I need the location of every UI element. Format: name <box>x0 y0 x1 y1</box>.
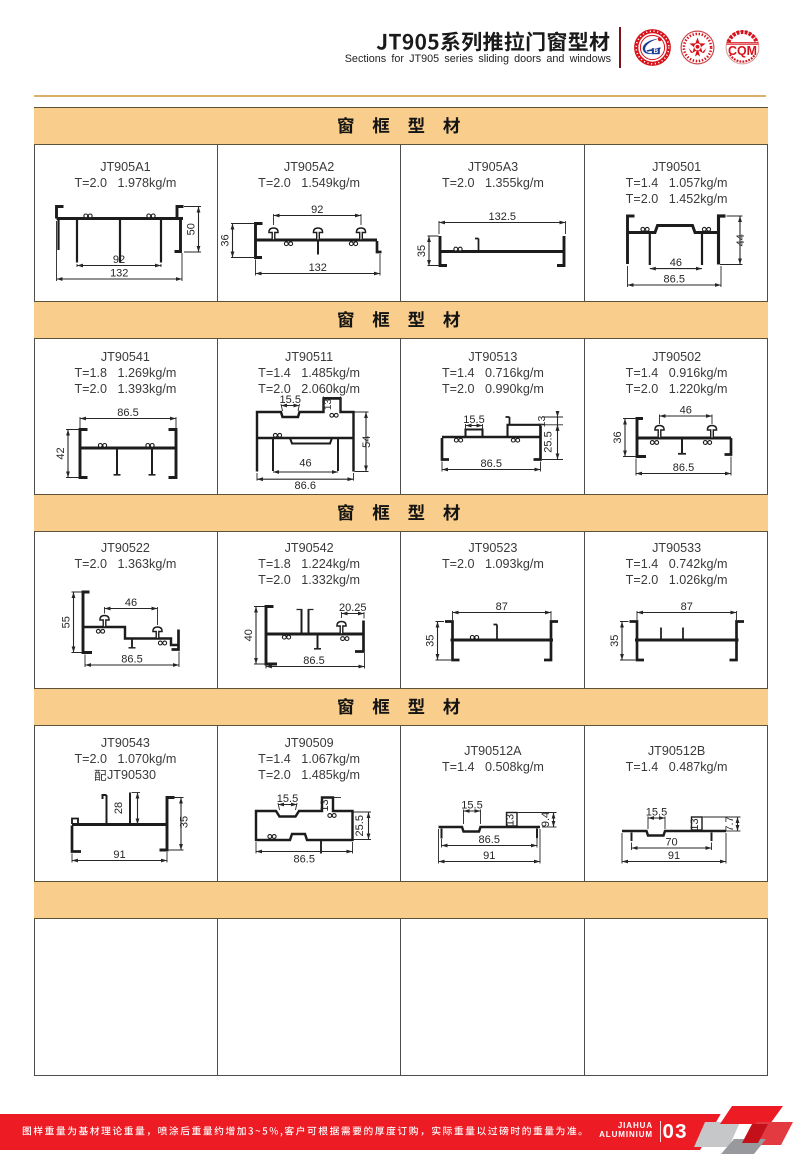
svg-text:15.5: 15.5 <box>280 394 301 406</box>
svg-text:86.5: 86.5 <box>121 653 142 665</box>
svg-text:15.5: 15.5 <box>277 793 298 805</box>
svg-text:13: 13 <box>505 814 517 826</box>
svg-text:70: 70 <box>665 836 677 848</box>
svg-text:35: 35 <box>179 816 191 828</box>
svg-text:36: 36 <box>612 431 624 443</box>
svg-text:86.5: 86.5 <box>303 655 324 667</box>
svg-text:91: 91 <box>113 849 125 861</box>
svg-text:15.5: 15.5 <box>463 414 484 426</box>
svg-text:35: 35 <box>416 245 428 257</box>
svg-text:86.5: 86.5 <box>479 834 500 846</box>
svg-text:132: 132 <box>110 267 128 279</box>
svg-text:9.4: 9.4 <box>540 812 552 827</box>
svg-text:15.5: 15.5 <box>461 799 482 811</box>
svg-text:86.5: 86.5 <box>117 407 138 419</box>
svg-text:35: 35 <box>609 635 621 647</box>
svg-text:42: 42 <box>55 447 67 459</box>
svg-text:13: 13 <box>323 399 334 411</box>
svg-text:46: 46 <box>670 257 682 269</box>
svg-text:86.6: 86.6 <box>295 480 316 492</box>
svg-text:13: 13 <box>319 799 331 811</box>
svg-text:44: 44 <box>735 234 747 246</box>
svg-text:92: 92 <box>113 254 125 266</box>
svg-text:132: 132 <box>309 262 327 274</box>
svg-text:28: 28 <box>113 802 125 814</box>
svg-text:86.5: 86.5 <box>294 854 315 866</box>
svg-text:46: 46 <box>299 458 311 470</box>
svg-text:86.5: 86.5 <box>481 458 502 470</box>
svg-text:15.5: 15.5 <box>646 806 667 818</box>
svg-text:55: 55 <box>60 616 72 628</box>
svg-text:13: 13 <box>536 416 548 428</box>
svg-text:87: 87 <box>681 601 693 613</box>
svg-text:87: 87 <box>496 601 508 613</box>
svg-text:35: 35 <box>424 635 436 647</box>
svg-text:36: 36 <box>219 234 231 246</box>
svg-text:86.5: 86.5 <box>664 273 685 285</box>
svg-text:92: 92 <box>311 204 323 216</box>
svg-text:132.5: 132.5 <box>488 211 516 223</box>
svg-text:46: 46 <box>680 404 692 416</box>
svg-text:91: 91 <box>483 850 495 862</box>
svg-text:20.25: 20.25 <box>339 602 367 614</box>
svg-text:91: 91 <box>668 850 680 862</box>
svg-text:86.5: 86.5 <box>673 462 694 474</box>
svg-text:54: 54 <box>361 436 373 448</box>
svg-text:40: 40 <box>243 629 255 641</box>
svg-text:46: 46 <box>125 597 137 609</box>
svg-text:50: 50 <box>185 223 197 235</box>
svg-text:7.7: 7.7 <box>724 816 736 831</box>
svg-text:13: 13 <box>689 818 701 830</box>
svg-text:25.5: 25.5 <box>354 815 366 836</box>
svg-text:25.5: 25.5 <box>543 431 555 452</box>
